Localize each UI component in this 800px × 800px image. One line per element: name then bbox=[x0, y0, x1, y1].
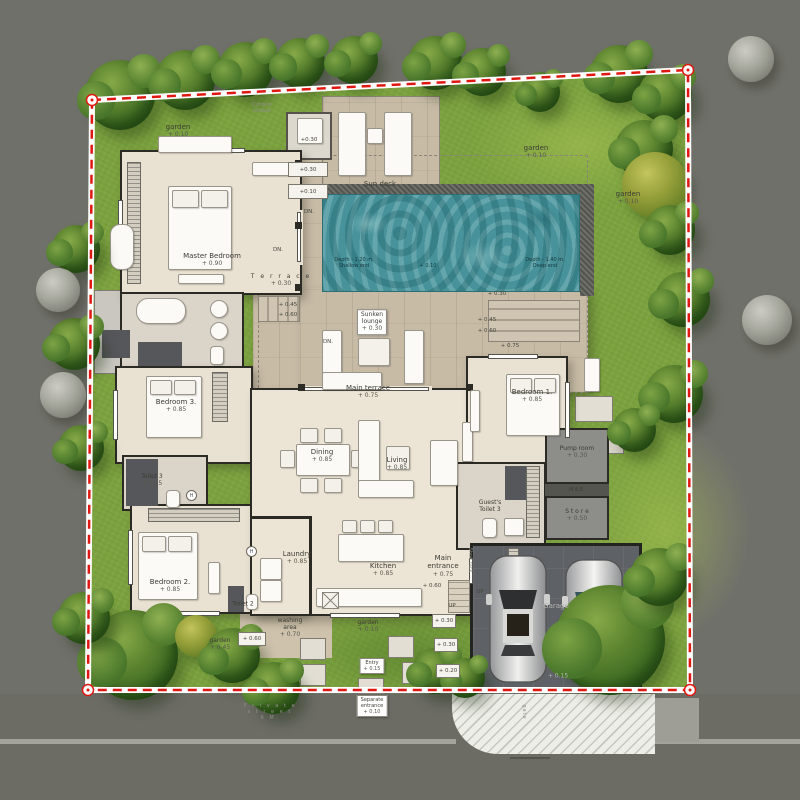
step-pad: + 0.30 bbox=[432, 614, 456, 628]
dn-marker: DN. bbox=[304, 209, 314, 215]
terrace-label: T e r r a c e+ 0.30 bbox=[251, 273, 311, 287]
outdoor-shower-label: Outdoorshower bbox=[252, 102, 272, 114]
level-marker: +0.30 bbox=[300, 167, 317, 173]
master-bedroom-label: Master Bedroom+ 0.90 bbox=[183, 252, 241, 268]
level-marker: + 0.45 bbox=[478, 317, 497, 323]
sunken-lounge-label: Sunkenlounge + 0.30 bbox=[357, 309, 387, 335]
level-marker: + 0.30 bbox=[437, 642, 456, 648]
guest-toilet-label: Guest'sToilet 3 bbox=[479, 499, 501, 513]
shoe-rack-label: Shoe rack bbox=[467, 548, 473, 573]
pool-level-label: + 0.10 bbox=[420, 263, 437, 269]
store-label: S t o r e+ 0.50 bbox=[565, 508, 589, 522]
bedroom-3-label: Bedroom 3.+ 0.85 bbox=[156, 398, 197, 414]
garage-label: Garage bbox=[543, 602, 569, 610]
level-marker: + 0.75 bbox=[501, 343, 520, 349]
sun-deck-label: Sun deck+ 0.45 bbox=[364, 180, 396, 196]
level-marker: + 0.30 bbox=[435, 618, 454, 624]
living-label: Living+ 0.85 bbox=[387, 456, 408, 472]
dn-marker: DN. bbox=[273, 247, 283, 253]
entry-label: Entry+ 0.15 bbox=[360, 658, 385, 674]
dn-marker: DN. bbox=[323, 339, 333, 345]
gate-label: gate bbox=[521, 704, 527, 719]
main-entrance-label: Mainentrance + 0.75 bbox=[427, 554, 458, 578]
laundry-label: Laundry+ 0.85 bbox=[283, 550, 312, 566]
dining-label: Dining+ 0.85 bbox=[311, 448, 334, 464]
level-marker: +0.10 bbox=[300, 189, 317, 195]
garden-label: garden+ 0.10 bbox=[524, 144, 549, 160]
level-marker: + 0.60 bbox=[478, 328, 497, 334]
garden-label: garden+ 0.10 bbox=[616, 190, 641, 206]
up-marker: UP bbox=[448, 603, 455, 609]
kitchen-label: Kitchen+ 0.85 bbox=[370, 562, 396, 578]
pool-depth-label: Depth - 1.20 m.Shallow end bbox=[334, 257, 373, 269]
toilet-2-label: Toilet 2 bbox=[232, 600, 253, 607]
step-pad: +0.30 bbox=[288, 162, 328, 177]
level-marker: +0.30 bbox=[301, 137, 318, 143]
bedroom-1-label: Bedroom 1.+ 0.85 bbox=[512, 388, 553, 404]
pump-room-label: Pump room+ 0.30 bbox=[560, 445, 594, 459]
toilet-3-label: Toilet 3+ 0.85 bbox=[141, 473, 162, 487]
step-pad: + 0.20 bbox=[436, 664, 460, 678]
level-marker: + 0.20 bbox=[439, 668, 458, 674]
garden-label: garden+ 0.45 bbox=[209, 637, 230, 651]
step-pad: + 0.60 bbox=[238, 632, 266, 646]
step-pad: + 0.30 bbox=[434, 638, 458, 652]
garden-label: garden+ 0.10 bbox=[166, 123, 191, 139]
pool-depth-label: Depth - 1.40 m.Deep end bbox=[525, 257, 564, 269]
level-marker: + 0.60 bbox=[243, 636, 262, 642]
level-marker: + 0.60 bbox=[423, 583, 442, 589]
separate-entrance-label: Separateentrance + 0.10 bbox=[357, 695, 388, 717]
up-marker: UP bbox=[476, 589, 483, 595]
step-pad: +0.10 bbox=[288, 184, 328, 199]
villa-floor-plan: +0.30 +0.10 +0.30 H H bbox=[0, 0, 800, 800]
washing-area-label: washingarea + 0.70 bbox=[278, 617, 303, 639]
street-label: P r i v a t es t r e e t6 M. bbox=[243, 703, 296, 721]
property-boundary bbox=[0, 0, 800, 800]
garden-label: garden+ 0.10 bbox=[357, 619, 378, 633]
level-marker: + 0.30 bbox=[488, 291, 507, 297]
bedroom-2-label: Bedroom 2.+ 0.85 bbox=[150, 578, 191, 594]
garage-level: + 0.15 bbox=[548, 672, 568, 679]
level-marker: + 0.60 bbox=[279, 312, 298, 318]
mbe-label: M.B.E. bbox=[569, 487, 585, 493]
level-marker: + 0.45 bbox=[279, 302, 298, 308]
main-terrace-label: Main terrace+ 0.75 bbox=[346, 384, 390, 400]
